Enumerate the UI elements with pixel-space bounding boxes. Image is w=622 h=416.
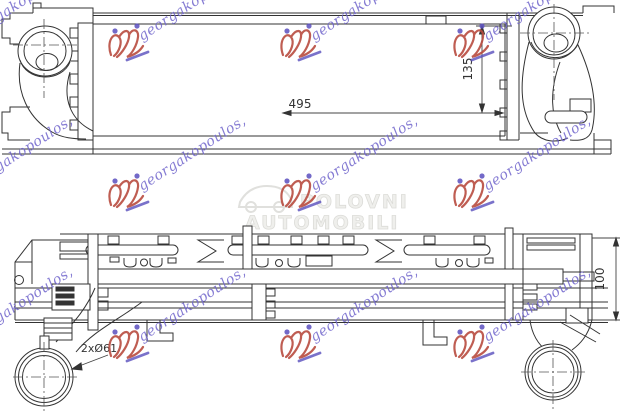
watermark-instance bbox=[109, 113, 249, 210]
watermark-instance bbox=[0, 264, 76, 361]
watermark-instance bbox=[0, 113, 76, 210]
right-pipe-front bbox=[521, 315, 600, 410]
background-logo: POLOVNI AUTOMOBILI bbox=[239, 186, 409, 234]
screenshot-canvas: georgakopoulos, POLOVNI AUTOMOBILI bbox=[0, 0, 622, 416]
watermark-instance bbox=[109, 0, 249, 60]
dimension-width-495: 495 bbox=[283, 97, 503, 116]
technical-drawing: georgakopoulos, POLOVNI AUTOMOBILI bbox=[0, 0, 622, 416]
watermark-instance bbox=[454, 410, 594, 416]
watermark-instance bbox=[281, 0, 421, 60]
pipe-diameter-label: 2xØ61 bbox=[81, 342, 117, 355]
background-logo-line2: AUTOMOBILI bbox=[245, 212, 399, 234]
car-icon bbox=[239, 186, 292, 212]
dim-100-label: 100 bbox=[593, 268, 607, 291]
watermark-instance bbox=[454, 113, 594, 210]
clip-tabs bbox=[108, 236, 485, 244]
clip-row bbox=[110, 256, 493, 267]
watermark-instance bbox=[281, 410, 421, 416]
watermark-instance bbox=[109, 410, 249, 416]
dim-495-label: 495 bbox=[289, 97, 312, 111]
watermark-instance bbox=[0, 410, 76, 416]
